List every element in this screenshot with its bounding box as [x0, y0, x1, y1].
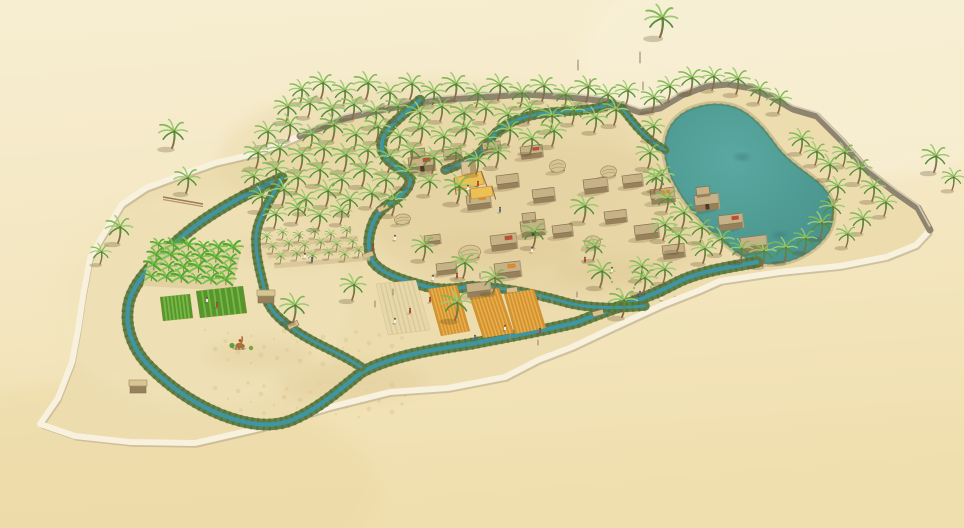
- sand-speck: [296, 407, 298, 409]
- sand-speck: [213, 386, 218, 391]
- sand-speck: [365, 389, 367, 391]
- game-viewport[interactable]: [0, 0, 964, 528]
- sand-speck: [246, 381, 250, 385]
- sand-speck: [273, 338, 275, 340]
- sand-speck: [342, 347, 344, 349]
- sand-speck: [296, 341, 298, 343]
- sugarcane-plot[interactable]: [196, 286, 247, 318]
- sand-speck: [282, 395, 287, 400]
- sand-speck: [358, 416, 360, 418]
- sand-speck: [381, 353, 383, 355]
- sand-speck: [321, 362, 326, 367]
- grass-tuft: [616, 288, 618, 290]
- sand-speck: [390, 383, 395, 388]
- sand-speck: [204, 329, 206, 331]
- sand-speck: [390, 410, 395, 415]
- palm-shadow-on-water: [735, 155, 749, 160]
- sand-speck: [213, 347, 218, 352]
- sand-speck: [308, 351, 312, 355]
- sand-speck: [298, 398, 303, 403]
- sand-speck: [358, 350, 360, 352]
- palm-shadow-on-water: [773, 233, 787, 238]
- oasis-scene[interactable]: [0, 0, 964, 528]
- sand-speck: [400, 402, 404, 406]
- sluice-hut[interactable]: [257, 290, 275, 303]
- well-hut[interactable]: [129, 380, 147, 393]
- sand-speck: [285, 348, 289, 352]
- sand-speck: [250, 335, 252, 337]
- sand-speck: [236, 389, 241, 394]
- sand-speck: [262, 345, 266, 349]
- sand-speck: [259, 392, 264, 397]
- sand-speck: [236, 350, 241, 355]
- sand-speck: [400, 336, 404, 340]
- sand-speck: [285, 387, 289, 391]
- sand-speck: [344, 338, 349, 343]
- sand-speck: [223, 339, 227, 343]
- grass-tuft: [650, 286, 652, 288]
- grass-tuft: [611, 281, 613, 283]
- sugarcane-plot[interactable]: [160, 294, 193, 321]
- sand-speck: [367, 407, 372, 412]
- sand-speck: [262, 411, 266, 415]
- sand-speck: [259, 353, 264, 358]
- sand-speck: [239, 408, 243, 412]
- sand-speck: [377, 333, 381, 337]
- sand-speck: [250, 362, 252, 364]
- sand-speck: [273, 404, 275, 406]
- sand-speck: [354, 330, 358, 334]
- sand-speck: [335, 413, 337, 415]
- sand-speck: [367, 341, 372, 346]
- sand-speck: [298, 359, 303, 364]
- sand-speck: [227, 332, 229, 334]
- sand-speck: [227, 359, 229, 361]
- sand-speck: [319, 383, 321, 385]
- sand-speck: [250, 401, 252, 403]
- sand-speck: [308, 390, 312, 394]
- sand-speck: [321, 335, 326, 340]
- sand-speck: [227, 398, 229, 400]
- grass-tuft: [633, 287, 635, 289]
- sand-speck: [262, 384, 266, 388]
- sand-speck: [275, 356, 280, 361]
- sand-speck: [390, 344, 395, 349]
